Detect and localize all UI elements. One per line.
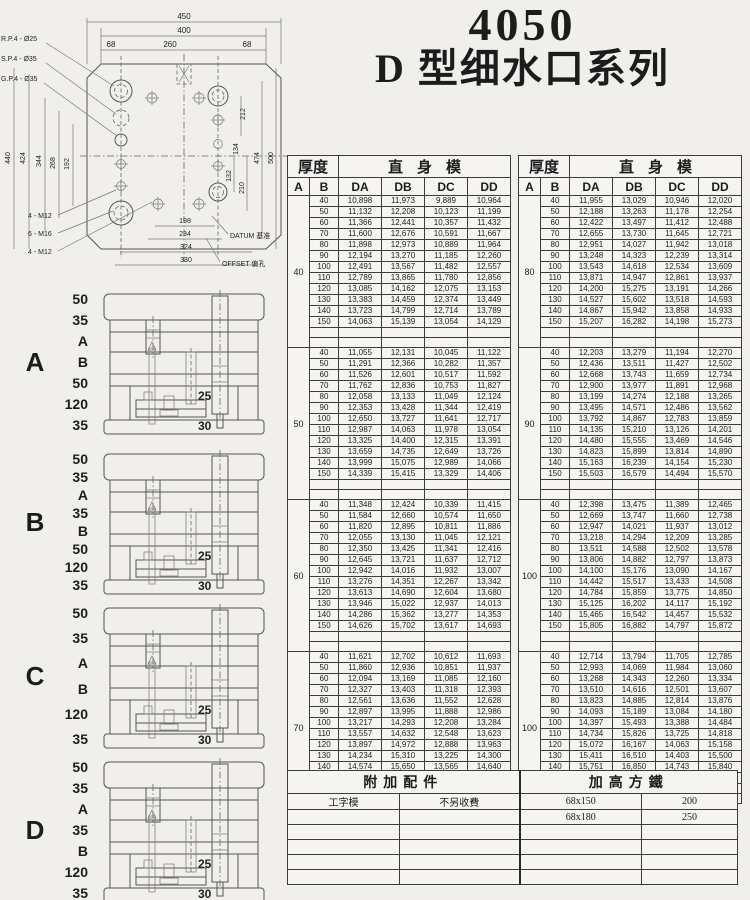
- thickness-b-value: 50: [541, 359, 570, 370]
- price-row: 7012,32713,40311,31812,393: [288, 685, 511, 696]
- price-cell: 13,999: [339, 458, 382, 469]
- price-row: 14014,28615,36213,27714,353: [288, 610, 511, 621]
- thickness-b-value: 60: [541, 370, 570, 381]
- dim-474: 474: [254, 152, 261, 164]
- thickness-b-value: 130: [310, 599, 339, 610]
- price-table-right: 厚度 直身模 A B DA DB DC DD 804011,95513,0291…: [518, 155, 742, 804]
- price-cell: 15,075: [382, 458, 425, 469]
- col-header-da: DA: [339, 178, 382, 196]
- price-row: 14013,99915,07512,98914,066: [288, 458, 511, 469]
- section-dim-label: B: [78, 682, 88, 696]
- price-cell: 12,973: [382, 240, 425, 251]
- price-cell: 14,457: [656, 610, 699, 621]
- price-cell: 12,993: [570, 663, 613, 674]
- accessory-cell: 68x180: [520, 810, 642, 825]
- rp-pin-label: R.P.4 - Ø25: [1, 36, 37, 43]
- price-cell: 14,129: [468, 317, 511, 328]
- thickness-b-value: 120: [541, 436, 570, 447]
- thickness-b-value: 90: [541, 707, 570, 718]
- price-row: 5011,86012,93610,85111,937: [288, 663, 511, 674]
- accessory-cell: [642, 855, 738, 870]
- price-row: 9013,24814,32312,23913,314: [519, 251, 742, 262]
- thickness-b-value: 140: [310, 458, 339, 469]
- price-cell: 12,441: [382, 218, 425, 229]
- thickness-b-value: 70: [541, 685, 570, 696]
- price-cell: 11,705: [656, 652, 699, 663]
- price-cell: 16,882: [613, 621, 656, 632]
- section-dim-label: 50: [72, 376, 88, 390]
- inner-dim-30: 30: [198, 887, 212, 900]
- price-cell: 14,735: [382, 447, 425, 458]
- price-cell: 15,570: [699, 469, 742, 480]
- price-cell: 11,932: [425, 566, 468, 577]
- price-cell: 13,789: [468, 306, 511, 317]
- price-cell: 13,433: [656, 577, 699, 588]
- price-cell: 13,469: [656, 436, 699, 447]
- price-cell: 13,263: [613, 207, 656, 218]
- thickness-b-value: 80: [310, 392, 339, 403]
- thickness-a-value: 60: [288, 500, 310, 652]
- thickness-b-value: 150: [310, 317, 339, 328]
- price-cell: 14,508: [699, 577, 742, 588]
- accessory-cell: [400, 825, 520, 840]
- price-cell: 16,579: [613, 469, 656, 480]
- price-row: 11012,78913,86511,78012,856: [288, 273, 511, 284]
- price-cell: 13,130: [382, 533, 425, 544]
- price-row: 6011,52612,60110,51711,592: [288, 370, 511, 381]
- price-cell: 14,484: [699, 718, 742, 729]
- price-cell: 12,836: [382, 381, 425, 392]
- price-cell: 15,411: [570, 751, 613, 762]
- price-cell: 15,207: [570, 317, 613, 328]
- header-thickness: 厚度: [288, 156, 339, 178]
- price-cell: 12,393: [468, 685, 511, 696]
- price-row: 12013,32514,40012,31513,391: [288, 436, 511, 447]
- price-cell: 12,734: [699, 370, 742, 381]
- price-cell: 15,942: [613, 306, 656, 317]
- price-cell: 14,933: [699, 306, 742, 317]
- price-cell: 12,270: [699, 348, 742, 359]
- price-row: 15015,50316,57914,49415,570: [519, 469, 742, 480]
- thickness-b-value: 140: [310, 610, 339, 621]
- thickness-b-value: 90: [541, 251, 570, 262]
- price-cell: 12,900: [570, 381, 613, 392]
- price-cell: 13,623: [468, 729, 511, 740]
- price-cell: 13,562: [699, 403, 742, 414]
- price-cell: 12,888: [425, 740, 468, 751]
- price-cell: 14,063: [656, 740, 699, 751]
- price-cell: 15,602: [613, 295, 656, 306]
- price-row: 7013,21814,29412,20913,285: [519, 533, 742, 544]
- price-cell: 14,117: [656, 599, 699, 610]
- thickness-b-value: 70: [541, 381, 570, 392]
- accessory-cell: 200: [642, 794, 738, 810]
- price-cell: 12,655: [570, 229, 613, 240]
- dim-198: 198: [179, 218, 191, 225]
- price-cell: 12,989: [425, 458, 468, 469]
- price-cell: 13,268: [570, 674, 613, 685]
- section-dim-label: 35: [72, 823, 88, 837]
- thread-4m12-upper: 4 - M12: [28, 213, 52, 220]
- price-cell: 14,274: [613, 392, 656, 403]
- price-cell: 11,973: [382, 196, 425, 207]
- price-cell: 10,851: [425, 663, 468, 674]
- thickness-b-value: 40: [310, 348, 339, 359]
- price-cell: 14,867: [613, 414, 656, 425]
- thickness-b-value: 60: [310, 370, 339, 381]
- price-row: 13015,41116,51014,40315,500: [519, 751, 742, 762]
- thickness-b-value: 140: [541, 610, 570, 621]
- accessory-row: [288, 855, 738, 870]
- thickness-b-value: 120: [541, 588, 570, 599]
- price-cell: 11,637: [425, 555, 468, 566]
- price-row: 5011,29112,36610,28211,357: [288, 359, 511, 370]
- thickness-b-value: 60: [310, 218, 339, 229]
- price-cell: 13,727: [382, 414, 425, 425]
- price-cell: 16,282: [613, 317, 656, 328]
- thickness-b-value: 90: [310, 555, 339, 566]
- section-dim-label: A: [78, 488, 88, 502]
- section-dim-label: 50: [72, 542, 88, 556]
- price-row: 12015,07216,16714,06315,158: [519, 740, 742, 751]
- price-cell: 12,194: [339, 251, 382, 262]
- section-b-dim-stack: 5035A35B5012035: [52, 448, 94, 596]
- thickness-b-value: 40: [310, 652, 339, 663]
- price-cell: 12,239: [656, 251, 699, 262]
- price-cell: 11,432: [468, 218, 511, 229]
- price-cell: 12,075: [425, 284, 468, 295]
- sp-pin-label: S.P.4 - Ø35: [1, 56, 37, 63]
- thickness-b-value: 130: [310, 447, 339, 458]
- price-row: 8011,89812,97310,88911,964: [288, 240, 511, 251]
- price-cell: 11,898: [339, 240, 382, 251]
- price-cell: 13,329: [425, 469, 468, 480]
- thickness-b-value: 100: [541, 718, 570, 729]
- section-dim-label: B: [78, 355, 88, 369]
- price-cell: 12,203: [570, 348, 613, 359]
- section-letter-c: C: [18, 602, 52, 750]
- price-cell: 15,210: [613, 425, 656, 436]
- price-cell: 14,201: [699, 425, 742, 436]
- accessory-cell: [520, 825, 642, 840]
- price-row: 5011,13212,20810,12311,199: [288, 207, 511, 218]
- section-dim-label: 35: [72, 313, 88, 327]
- price-cell: 11,942: [656, 240, 699, 251]
- price-cell: 11,820: [339, 522, 382, 533]
- price-cell: 11,482: [425, 262, 468, 273]
- header-thickness: 厚度: [519, 156, 570, 178]
- thickness-b-value: 60: [541, 674, 570, 685]
- section-d-drawing: 25 30: [94, 756, 274, 900]
- price-row: 804011,95513,02910,94612,020: [519, 196, 742, 207]
- price-cell: 16,167: [613, 740, 656, 751]
- price-cell: 15,273: [699, 317, 742, 328]
- price-cell: 15,163: [570, 458, 613, 469]
- price-row: 11014,73415,82613,72514,818: [519, 729, 742, 740]
- price-cell: 14,818: [699, 729, 742, 740]
- price-cell: 13,858: [656, 306, 699, 317]
- price-cell: 10,612: [425, 652, 468, 663]
- price-cell: 11,860: [339, 663, 382, 674]
- price-row: 8013,82314,88512,81413,876: [519, 696, 742, 707]
- price-cell: 12,374: [425, 295, 468, 306]
- thickness-b-value: 90: [310, 403, 339, 414]
- price-cell: 10,357: [425, 218, 468, 229]
- thickness-b-value: 100: [541, 262, 570, 273]
- price-row: 8013,51114,58812,50213,578: [519, 544, 742, 555]
- price-cell: 11,526: [339, 370, 382, 381]
- thickness-b-value: 110: [541, 425, 570, 436]
- price-cell: 12,947: [570, 522, 613, 533]
- price-cell: 15,415: [382, 469, 425, 480]
- price-cell: 10,889: [425, 240, 468, 251]
- price-cell: 11,427: [656, 359, 699, 370]
- thickness-b-value: 130: [541, 447, 570, 458]
- price-cell: 14,063: [382, 425, 425, 436]
- thickness-b-value: 80: [310, 544, 339, 555]
- price-cell: 14,198: [656, 317, 699, 328]
- price-cell: 15,493: [613, 718, 656, 729]
- price-cell: 12,327: [339, 685, 382, 696]
- price-row: 13014,52715,60213,51814,593: [519, 295, 742, 306]
- section-dim-label: 35: [72, 781, 88, 795]
- price-cell: 12,260: [656, 674, 699, 685]
- col-header-b: B: [541, 178, 570, 196]
- price-cell: 13,428: [382, 403, 425, 414]
- price-cell: 14,063: [339, 317, 382, 328]
- thickness-b-value: 80: [541, 696, 570, 707]
- price-row: 6011,82012,89510,81111,886: [288, 522, 511, 533]
- accessory-cell: [520, 855, 642, 870]
- price-row: 13013,94615,02212,93714,013: [288, 599, 511, 610]
- section-dim-label: 35: [72, 506, 88, 520]
- price-cell: 15,702: [382, 621, 425, 632]
- price-cell: 12,548: [425, 729, 468, 740]
- price-cell: 11,891: [656, 381, 699, 392]
- plan-view-svg: 450 400 68 260 68 R.P.4 - Ø25 S.P.4 - Ø3…: [0, 6, 292, 284]
- price-row: 9013,49514,57112,48613,562: [519, 403, 742, 414]
- col-header-b: B: [310, 178, 339, 196]
- price-row: 704011,62112,70210,61211,693: [288, 652, 511, 663]
- price-cell: 15,872: [699, 621, 742, 632]
- price-cell: 13,012: [699, 522, 742, 533]
- price-cell: 13,518: [656, 295, 699, 306]
- price-cell: 13,191: [656, 284, 699, 295]
- price-cell: 12,712: [468, 555, 511, 566]
- price-cell: 13,090: [656, 566, 699, 577]
- accessory-cell: [520, 840, 642, 855]
- price-cell: 11,693: [468, 652, 511, 663]
- price-row: 10012,94214,01611,93213,007: [288, 566, 511, 577]
- dim-450: 450: [177, 12, 191, 21]
- thickness-a-value: 50: [288, 348, 310, 500]
- price-cell: 14,947: [613, 273, 656, 284]
- section-dim-label: 50: [72, 606, 88, 620]
- thickness-b-value: 90: [310, 251, 339, 262]
- section-dim-label: B: [78, 524, 88, 538]
- price-cell: 13,871: [570, 273, 613, 284]
- price-cell: 12,628: [468, 696, 511, 707]
- price-cell: 14,343: [613, 674, 656, 685]
- price-row: 1004012,39813,47511,38912,465: [519, 500, 742, 511]
- price-cell: 12,601: [382, 370, 425, 381]
- price-cell: 12,668: [570, 370, 613, 381]
- price-cell: 11,194: [656, 348, 699, 359]
- price-cell: 12,486: [656, 403, 699, 414]
- thickness-b-value: 110: [310, 577, 339, 588]
- price-cell: 13,248: [570, 251, 613, 262]
- price-row: 11013,27614,35112,26713,342: [288, 577, 511, 588]
- price-cell: 12,942: [339, 566, 382, 577]
- price-cell: 13,730: [613, 229, 656, 240]
- thickness-b-value: 100: [310, 566, 339, 577]
- price-cell: 14,016: [382, 566, 425, 577]
- price-cell: 13,897: [339, 740, 382, 751]
- price-cell: 13,859: [699, 414, 742, 425]
- thickness-b-value: 80: [541, 392, 570, 403]
- price-cell: 12,604: [425, 588, 468, 599]
- price-cell: 12,502: [656, 544, 699, 555]
- price-cell: 11,937: [656, 522, 699, 533]
- price-cell: 11,049: [425, 392, 468, 403]
- thickness-b-value: 50: [541, 511, 570, 522]
- price-cell: 13,747: [613, 511, 656, 522]
- price-cell: 11,827: [468, 381, 511, 392]
- price-cell: 15,517: [613, 577, 656, 588]
- spacer-row: [519, 642, 742, 652]
- accessory-cell: [288, 840, 400, 855]
- price-row: 6012,66813,74311,65912,734: [519, 370, 742, 381]
- price-cell: 11,318: [425, 685, 468, 696]
- thickness-b-value: 120: [310, 284, 339, 295]
- price-cell: 13,018: [699, 240, 742, 251]
- price-cell: 13,199: [570, 392, 613, 403]
- section-dim-label: 120: [65, 560, 88, 574]
- price-cell: 13,475: [613, 500, 656, 511]
- price-cell: 11,341: [425, 544, 468, 555]
- price-cell: 13,543: [570, 262, 613, 273]
- price-cell: 13,279: [613, 348, 656, 359]
- price-row: 6013,26814,34312,26013,334: [519, 674, 742, 685]
- header-straight-mold: 直身模: [570, 156, 742, 178]
- thickness-b-value: 70: [310, 685, 339, 696]
- price-cell: 11,412: [656, 218, 699, 229]
- price-cell: 14,494: [656, 469, 699, 480]
- thickness-b-value: 50: [310, 359, 339, 370]
- price-cell: 12,649: [425, 447, 468, 458]
- thickness-b-value: 110: [541, 729, 570, 740]
- price-cell: 12,055: [339, 533, 382, 544]
- price-cell: 12,422: [570, 218, 613, 229]
- price-cell: 11,045: [425, 533, 468, 544]
- thickness-b-value: 120: [310, 740, 339, 751]
- accessory-cell: 68x150: [520, 794, 642, 810]
- price-cell: 12,814: [656, 696, 699, 707]
- price-row: 13013,65914,73512,64913,726: [288, 447, 511, 458]
- price-cell: 11,650: [468, 511, 511, 522]
- price-cell: 12,669: [570, 511, 613, 522]
- price-cell: 10,946: [656, 196, 699, 207]
- price-row: 5012,18813,26311,17812,254: [519, 207, 742, 218]
- accessory-cell: [520, 870, 642, 885]
- price-cell: 14,527: [570, 295, 613, 306]
- price-cell: 11,348: [339, 500, 382, 511]
- price-cell: 12,714: [570, 652, 613, 663]
- accessory-cell: [642, 840, 738, 855]
- dim-330: 330: [180, 257, 192, 264]
- price-cell: 13,725: [656, 729, 699, 740]
- price-cell: 12,797: [656, 555, 699, 566]
- section-view-a: A 5035AB5012035 25 30: [18, 288, 283, 436]
- price-row: 12013,89714,97212,88813,963: [288, 740, 511, 751]
- price-cell: 14,823: [570, 447, 613, 458]
- accessory-cell: [400, 840, 520, 855]
- thickness-b-value: 100: [541, 566, 570, 577]
- price-row: 6012,94714,02111,93713,012: [519, 522, 742, 533]
- section-d-dim-stack: 5035A35B12035: [52, 756, 94, 900]
- price-row: 11014,44215,51713,43314,508: [519, 577, 742, 588]
- price-cell: 12,501: [656, 685, 699, 696]
- price-cell: 13,557: [339, 729, 382, 740]
- price-cell: 14,885: [613, 696, 656, 707]
- price-cell: 13,133: [382, 392, 425, 403]
- spacer-row: [519, 480, 742, 490]
- price-cell: 10,045: [425, 348, 468, 359]
- price-cell: 14,626: [339, 621, 382, 632]
- price-cell: 11,955: [570, 196, 613, 207]
- price-cell: 11,389: [656, 500, 699, 511]
- dim-68-right: 68: [243, 40, 252, 49]
- price-row: 13014,82315,89913,81414,890: [519, 447, 742, 458]
- price-cell: 12,353: [339, 403, 382, 414]
- price-cell: 13,084: [656, 707, 699, 718]
- dim-132: 132: [226, 170, 233, 182]
- price-row: 8012,56113,63611,55212,628: [288, 696, 511, 707]
- price-cell: 10,964: [468, 196, 511, 207]
- col-header-db: DB: [382, 178, 425, 196]
- price-cell: 14,353: [468, 610, 511, 621]
- thickness-b-value: 40: [541, 652, 570, 663]
- price-cell: 12,209: [656, 533, 699, 544]
- price-cell: 16,510: [613, 751, 656, 762]
- section-dim-label: A: [78, 802, 88, 816]
- price-cell: 12,936: [382, 663, 425, 674]
- price-cell: 12,131: [382, 348, 425, 359]
- thickness-b-value: 50: [541, 207, 570, 218]
- price-cell: 12,557: [468, 262, 511, 273]
- price-cell: 13,946: [339, 599, 382, 610]
- price-cell: 13,617: [425, 621, 468, 632]
- accessory-cell: [400, 870, 520, 885]
- thickness-b-value: 150: [541, 469, 570, 480]
- col-header-dc: DC: [425, 178, 468, 196]
- price-cell: 13,449: [468, 295, 511, 306]
- price-cell: 16,239: [613, 458, 656, 469]
- price-cell: 10,753: [425, 381, 468, 392]
- price-row: 8013,19914,27412,18813,265: [519, 392, 742, 403]
- price-cell: 13,937: [699, 273, 742, 284]
- price-cell: 16,202: [613, 599, 656, 610]
- accessory-table-body: 工字模不另收費68x15020068x180250: [288, 794, 738, 885]
- offset-label: OFFSET 偏孔: [222, 259, 265, 268]
- price-row: 10014,39715,49313,38814,484: [519, 718, 742, 729]
- price-cell: 12,058: [339, 392, 382, 403]
- price-cell: 15,899: [613, 447, 656, 458]
- price-cell: 15,158: [699, 740, 742, 751]
- price-cell: 15,826: [613, 729, 656, 740]
- price-row: 11012,98714,06311,97813,054: [288, 425, 511, 436]
- price-row: 12014,48015,55513,46914,546: [519, 436, 742, 447]
